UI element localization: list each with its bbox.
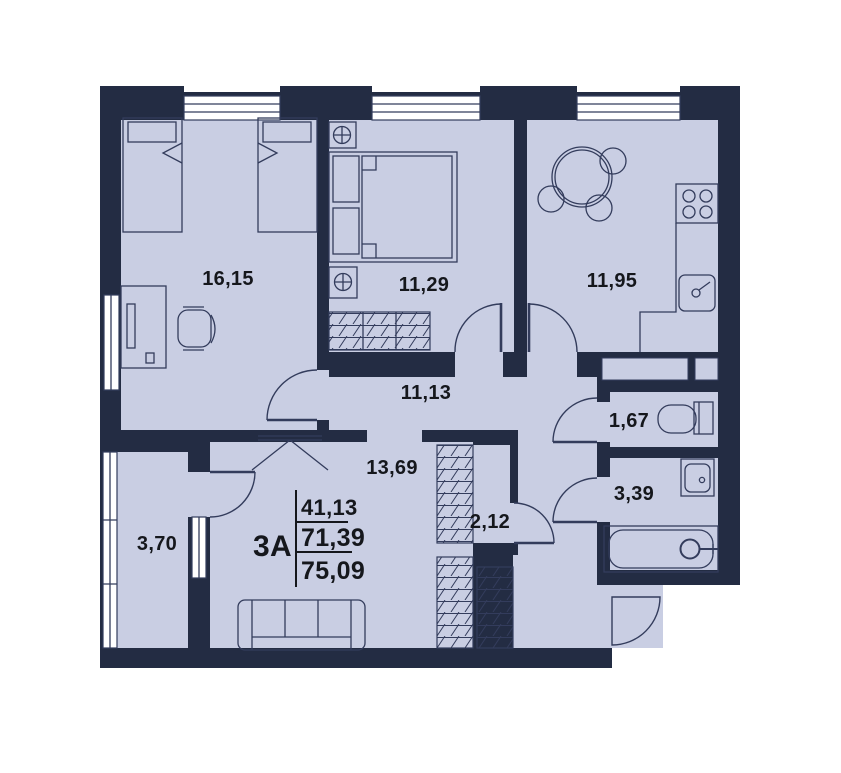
wardrobe-closet [437,445,473,543]
door-opening [455,352,503,377]
room-area-label: 16,15 [202,268,254,290]
room-area-label: 11,29 [399,274,449,296]
room-area-label: 3,39 [614,483,654,505]
room-area-label: 13,69 [366,457,418,479]
wall-cap [477,555,513,567]
area-without-balcony-value: 71,39 [301,524,365,552]
window-top-3 [577,96,680,120]
living-area-value: 41,13 [301,495,358,520]
floor-plan: 16,15 11,29 11,95 11,13 13,69 3,70 2,12 … [0,0,841,768]
opening-hall-living [367,430,422,444]
door-opening [527,352,577,377]
room-area-label: 11,13 [401,382,451,404]
corridor [518,430,597,555]
duct-shaft [695,358,718,380]
room-area-label: 3,70 [137,533,177,555]
balcony-glazing [103,452,117,648]
door-opening [510,503,518,543]
apartment-type-label: 3А [253,530,292,563]
window-left [104,295,119,390]
entry-area [513,555,597,648]
door-opening [597,477,610,522]
door-opening [188,472,210,517]
window-top-2 [372,96,480,120]
room-area-label: 1,67 [609,410,649,432]
room-bathroom [610,458,718,570]
total-area-value: 75,09 [301,557,365,585]
room-area-label: 2,12 [470,511,510,533]
balcony-partition-window [192,517,206,578]
room-hallway [329,377,597,430]
room-area-label: 11,95 [587,270,637,292]
room-kitchen [527,120,718,352]
wall-divider [473,555,477,648]
door-opening [317,370,329,420]
wardrobe-living [437,557,473,648]
duct-shaft [602,358,688,380]
window-top-1 [184,96,280,120]
wardrobe-bedroom-2 [329,312,430,350]
wardrobe-entry [477,567,513,648]
